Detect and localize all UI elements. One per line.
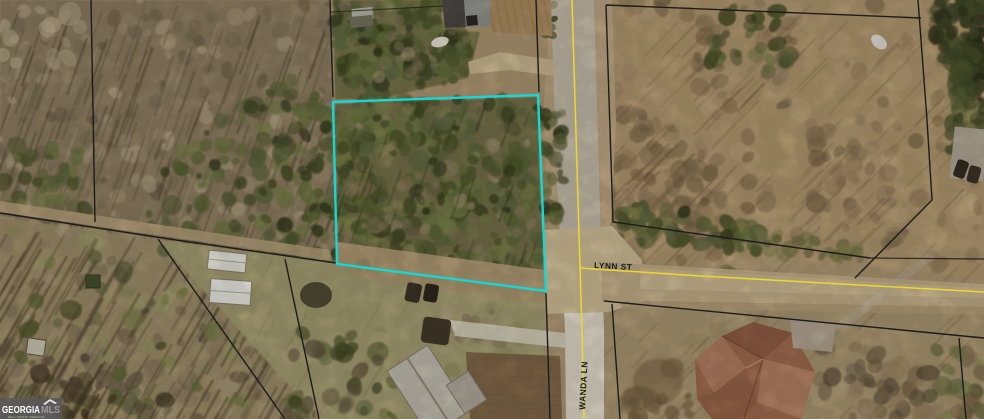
svg-text:MLS: MLS	[41, 404, 60, 416]
svg-text:GEORGIA: GEORGIA	[2, 404, 40, 416]
svg-text:LYNN ST: LYNN ST	[594, 260, 633, 272]
svg-text:REAL ESTATE SERVICES: REAL ESTATE SERVICES	[8, 415, 45, 419]
